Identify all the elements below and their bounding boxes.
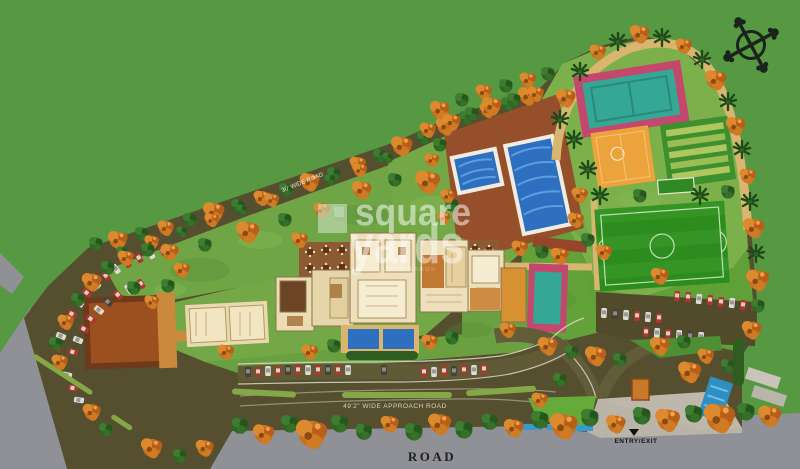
svg-text:49'2" WIDE APPROACH ROAD: 49'2" WIDE APPROACH ROAD (343, 403, 447, 410)
svg-text:ENTRY/EXIT: ENTRY/EXIT (614, 438, 657, 445)
svg-text:ROAD: ROAD (408, 449, 456, 464)
svg-text:SQUARE YARDS: SQUARE YARDS (371, 267, 436, 273)
svg-text:yards: yards (350, 213, 464, 275)
